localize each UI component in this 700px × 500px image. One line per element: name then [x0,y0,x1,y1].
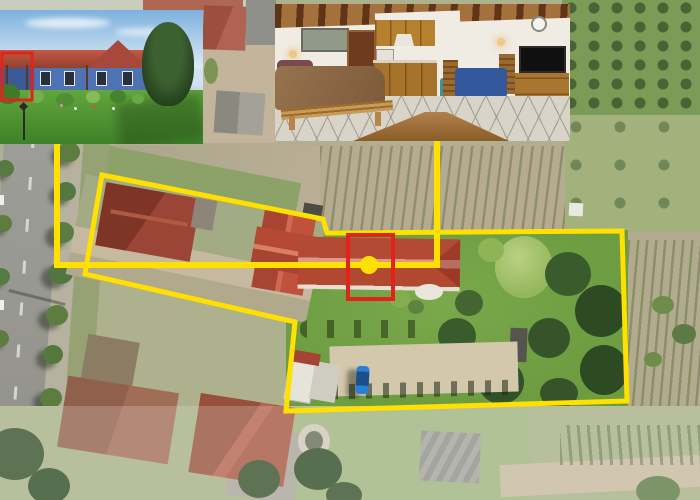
annotation-overlay [0,0,700,500]
inset-highlight-rect [2,53,32,100]
location-marker [360,256,378,274]
property-boundary [85,175,627,411]
aerial-property-image[interactable] [0,0,700,500]
